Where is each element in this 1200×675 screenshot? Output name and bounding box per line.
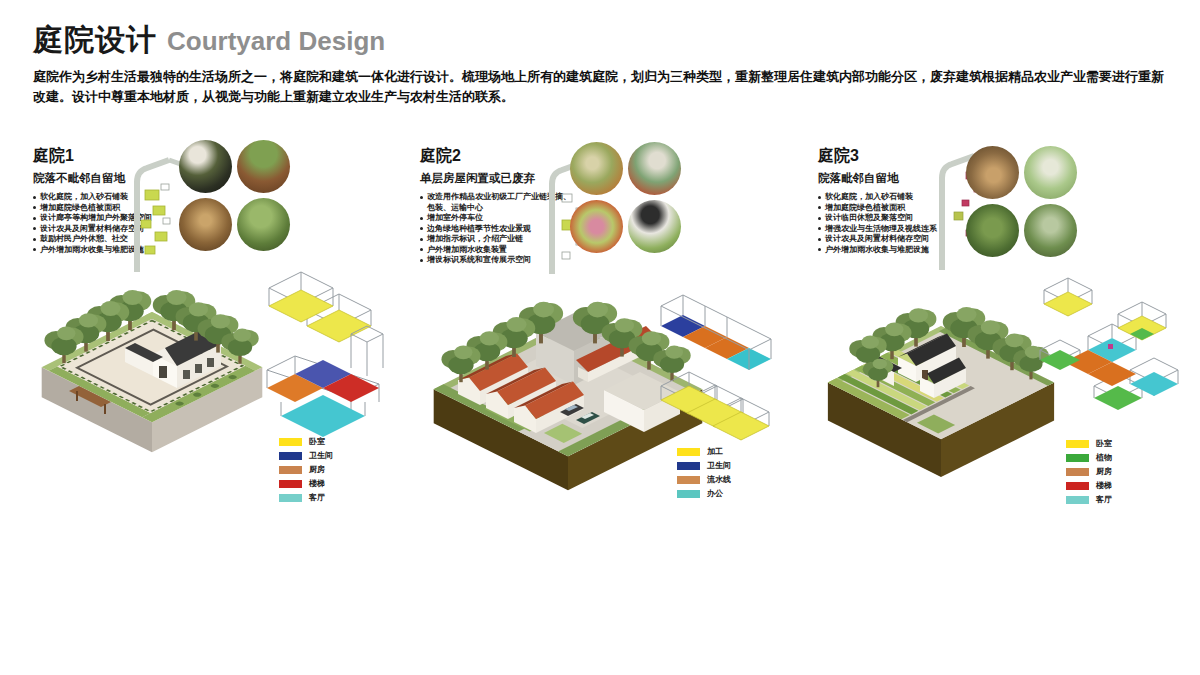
legend-label: 流水线 bbox=[707, 474, 731, 485]
photo-produce-packing bbox=[628, 142, 681, 195]
legend-swatch bbox=[279, 452, 302, 460]
legend-swatch bbox=[279, 480, 302, 488]
legend-label: 厨房 bbox=[309, 464, 325, 475]
bullet-dot bbox=[818, 227, 821, 230]
legend-label: 卫生间 bbox=[707, 460, 731, 471]
bullet-text: 户外增加雨水收集装置 bbox=[427, 245, 507, 256]
legend-row: 卫生间 bbox=[677, 460, 731, 471]
axonometric-site-courtyard-3 bbox=[816, 274, 1066, 549]
bullet-dot bbox=[33, 206, 36, 209]
bullet-text: 设计农具及闲置材料储存空间 bbox=[825, 234, 929, 245]
legend-label: 楼梯 bbox=[309, 478, 325, 489]
legend-row: 卫生间 bbox=[279, 450, 333, 461]
photo-compost-bowl bbox=[179, 140, 232, 193]
legend-label: 厨房 bbox=[1096, 466, 1112, 477]
legend-label: 卧室 bbox=[1096, 438, 1112, 449]
bullet-dot bbox=[818, 196, 821, 199]
bullet-text: 增设标识系统和宣传展示空间 bbox=[427, 255, 531, 266]
bullet-text: 软化庭院，加入砂石铺装 bbox=[40, 192, 128, 203]
legend-row: 加工 bbox=[677, 446, 731, 457]
exploded-function-diagram-3 bbox=[1034, 276, 1182, 438]
legend-swatch bbox=[1066, 440, 1089, 448]
photo-vegetable-market bbox=[570, 142, 623, 195]
bullet-dot bbox=[33, 196, 36, 199]
legend-label: 植物 bbox=[1096, 452, 1112, 463]
photo-courtyard-greenery bbox=[1024, 204, 1077, 257]
bullet-dot bbox=[818, 238, 821, 241]
legend-swatch bbox=[1066, 468, 1089, 476]
photo-packaged-produce bbox=[570, 200, 623, 253]
legend-label: 卫生间 bbox=[309, 450, 333, 461]
section-courtyard-3: 庭院3 院落毗邻自留地 软化庭院，加入砂石铺装增加庭院绿色植被面积设计临田休憩及… bbox=[818, 146, 1200, 666]
legend-row: 客厅 bbox=[279, 492, 333, 503]
photo-tool-shed-interior bbox=[179, 198, 232, 251]
bullet-dot bbox=[33, 238, 36, 241]
bullet-text: 增强农业与生活物理及视线连系 bbox=[825, 224, 937, 235]
bullet-dot bbox=[420, 259, 423, 262]
legend-swatch bbox=[279, 438, 302, 446]
bullet-text: 增加庭院绿色植被面积 bbox=[825, 203, 905, 214]
legend-row: 流水线 bbox=[677, 474, 731, 485]
legend-label: 卧室 bbox=[309, 436, 325, 447]
photo-grid bbox=[570, 142, 681, 253]
legend-row: 卧室 bbox=[279, 436, 333, 447]
legend-row: 植物 bbox=[1066, 452, 1112, 463]
bullet-dot bbox=[33, 217, 36, 220]
photo-greenhouse-interior bbox=[1024, 146, 1077, 199]
photo-wooden-shed-visit bbox=[966, 146, 1019, 199]
photo-grid bbox=[966, 146, 1077, 257]
legend-courtyard-2: 加工卫生间流水线办公 bbox=[677, 446, 731, 499]
legend-swatch bbox=[677, 490, 700, 498]
legend-swatch bbox=[279, 466, 302, 474]
legend-swatch bbox=[279, 494, 302, 502]
bullet-text: 鼓励村民户外休憩、社交 bbox=[40, 234, 128, 245]
photo-grid bbox=[179, 140, 290, 251]
legend-swatch bbox=[1066, 482, 1089, 490]
legend-swatch bbox=[1066, 496, 1089, 504]
legend-label: 加工 bbox=[707, 446, 723, 457]
legend-row: 楼梯 bbox=[279, 478, 333, 489]
bullet-dot bbox=[33, 248, 36, 251]
bullet-dot bbox=[818, 248, 821, 251]
photo-produce-sorting bbox=[628, 200, 681, 253]
legend-row: 办公 bbox=[677, 488, 731, 499]
title-row: 庭院设计 Courtyard Design bbox=[33, 20, 1173, 61]
bullet-text: 增加室外停车位 bbox=[427, 213, 483, 224]
bullet-text: 软化庭院，加入砂石铺装 bbox=[825, 192, 913, 203]
exploded-function-diagram-1 bbox=[261, 264, 391, 439]
legend-swatch bbox=[677, 462, 700, 470]
photo-garden-work bbox=[966, 204, 1019, 257]
bullet-text: 边角绿地种植季节性农业景观 bbox=[427, 224, 531, 235]
bullet-text: 增加庭院绿色植被面积 bbox=[40, 203, 120, 214]
photo-courtyard-plants bbox=[237, 198, 290, 251]
legend-swatch bbox=[1066, 454, 1089, 462]
legend-row: 厨房 bbox=[279, 464, 333, 475]
section-courtyard-2: 庭院2 单层房屋闲置或已废弃 改造用作精品农业初级工厂产业链采摘、包装、运输中心… bbox=[420, 146, 805, 666]
section-courtyard-1: 庭院1 院落不毗邻自留地 软化庭院，加入砂石铺装增加庭院绿色植被面积设计廊亭等构… bbox=[33, 146, 418, 666]
bullet-dot bbox=[420, 238, 423, 241]
legend-row: 楼梯 bbox=[1066, 480, 1112, 491]
bullet-dot bbox=[33, 227, 36, 230]
page-title: 庭院设计 bbox=[33, 20, 157, 61]
page-header: 庭院设计 Courtyard Design 庭院作为乡村生活最独特的生活场所之一… bbox=[33, 20, 1173, 106]
bullet-dot bbox=[420, 217, 423, 220]
bullet-text: 增加指示标识，介绍产业链 bbox=[427, 234, 523, 245]
bullet-dot bbox=[818, 206, 821, 209]
legend-row: 厨房 bbox=[1066, 466, 1112, 477]
legend-label: 楼梯 bbox=[1096, 480, 1112, 491]
legend-courtyard-1: 卧室卫生间厨房楼梯客厅 bbox=[279, 436, 333, 503]
legend-label: 客厅 bbox=[309, 492, 325, 503]
bullet-text: 户外增加雨水收集与堆肥设施 bbox=[825, 245, 929, 256]
legend-swatch bbox=[677, 476, 700, 484]
bullet-dot bbox=[420, 248, 423, 251]
design-board: 庭院设计 Courtyard Design 庭院作为乡村生活最独特的生活场所之一… bbox=[0, 0, 1200, 675]
legend-swatch bbox=[677, 448, 700, 456]
bullet-text: 设计临田休憩及聚落空间 bbox=[825, 213, 913, 224]
axonometric-site-courtyard-1 bbox=[27, 270, 272, 530]
exploded-function-diagram-2 bbox=[653, 292, 778, 447]
page-title-en: Courtyard Design bbox=[167, 26, 385, 57]
legend-courtyard-3: 卧室植物厨房楼梯客厅 bbox=[1066, 438, 1112, 505]
legend-row: 客厅 bbox=[1066, 494, 1112, 505]
legend-row: 卧室 bbox=[1066, 438, 1112, 449]
bullet-dot bbox=[420, 196, 423, 199]
legend-label: 客厅 bbox=[1096, 494, 1112, 505]
bullet-dot bbox=[818, 217, 821, 220]
page-description: 庭院作为乡村生活最独特的生活场所之一，将庭院和建筑一体化进行设计。梳理场地上所有… bbox=[33, 67, 1171, 106]
bullet-dot bbox=[420, 227, 423, 230]
legend-label: 办公 bbox=[707, 488, 723, 499]
photo-planter-barrel bbox=[237, 140, 290, 193]
